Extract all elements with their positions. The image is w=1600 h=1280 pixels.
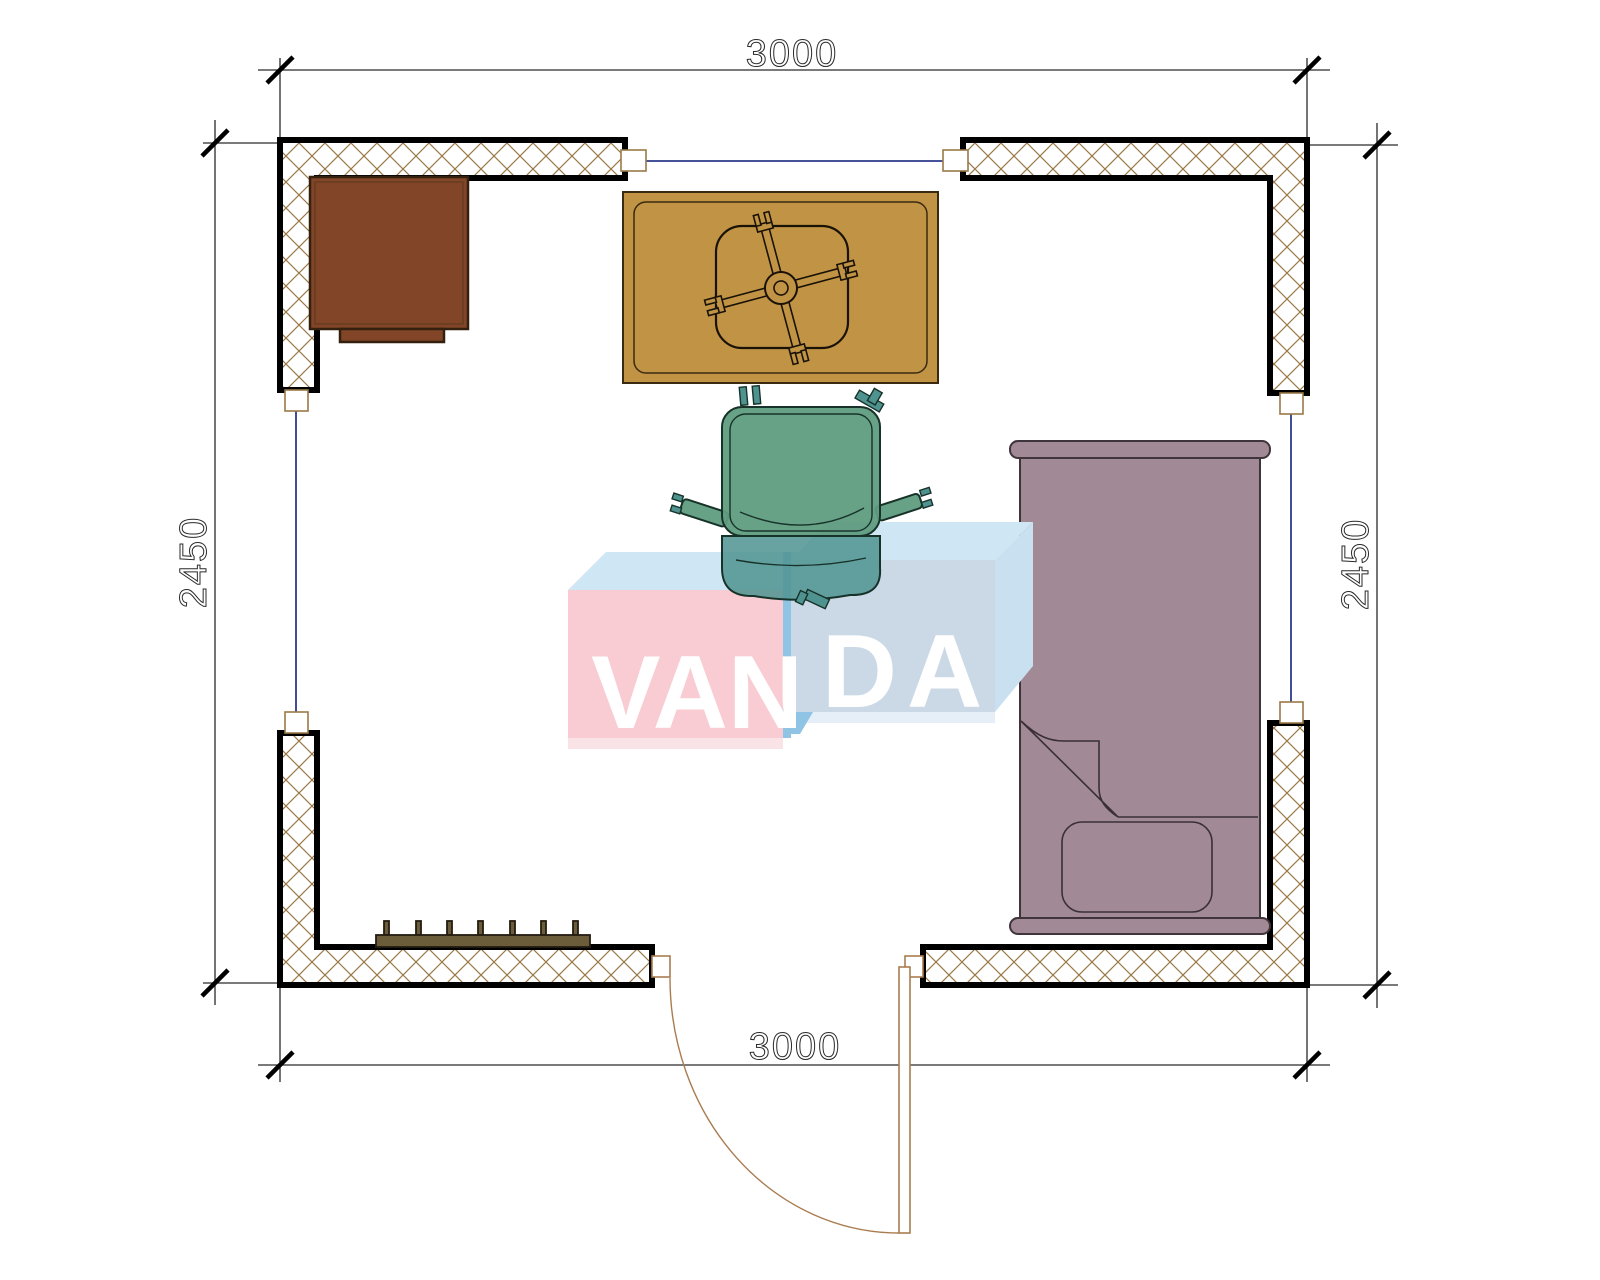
door-jamb-left [652,956,670,977]
dim-right-label: 2450 [1335,518,1377,611]
floor-plan-canvas: 3000 3000 2450 2450 [0,0,1600,1280]
bed-footboard [1010,918,1270,934]
door-icon [652,956,923,1233]
watermark-text-left: VAN [591,635,803,751]
wall-top-right [963,140,1307,393]
single-bed-icon [1010,441,1270,934]
dim-left-label: 2450 [173,516,215,609]
dim-top-label: 3000 [746,33,839,75]
window-cap [285,390,308,411]
cabinet-icon [310,177,468,342]
radiator-icon [376,921,590,947]
window-cap [943,150,968,171]
bed-headboard [1010,441,1270,458]
window-cap [1280,393,1303,414]
window-cap [285,712,308,733]
window-cap [621,150,646,171]
watermark-text-right: DA [822,614,992,730]
window-cap [1280,702,1303,723]
door-leaf [899,967,910,1233]
dim-bottom-label: 3000 [749,1026,842,1068]
floor-plan-drawing: 3000 3000 2450 2450 [0,0,1600,1280]
door-swing-arc [670,978,899,1233]
